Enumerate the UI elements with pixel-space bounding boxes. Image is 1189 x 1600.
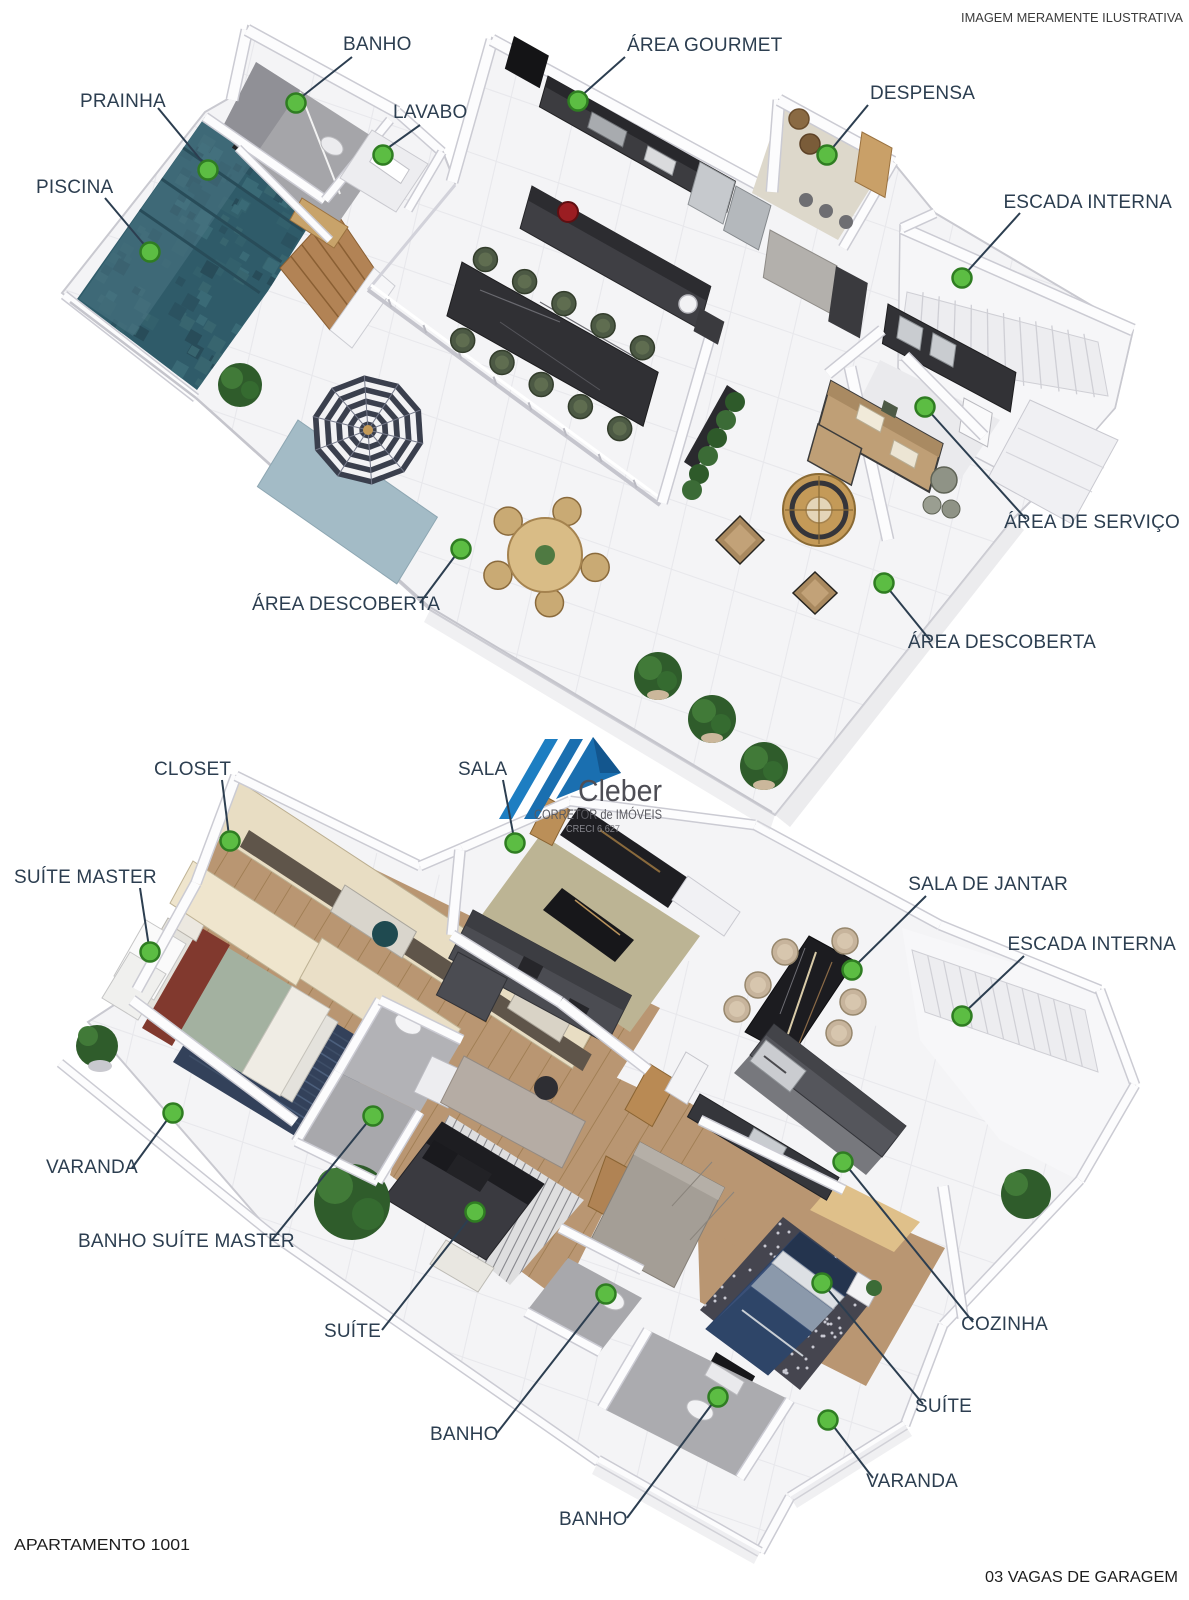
svg-text:ÁREA DESCOBERTA: ÁREA DESCOBERTA [908,632,1096,653]
svg-text:BANHO SUÍTE MASTER: BANHO SUÍTE MASTER [78,1231,295,1252]
svg-text:COZINHA: COZINHA [961,1314,1048,1335]
svg-text:BANHO: BANHO [559,1509,628,1530]
svg-text:PRAINHA: PRAINHA [80,91,166,112]
svg-text:LAVABO: LAVABO [393,102,467,123]
svg-text:SUÍTE: SUÍTE [324,1321,381,1342]
svg-text:VARANDA: VARANDA [866,1471,958,1492]
svg-text:ÁREA DE SERVIÇO: ÁREA DE SERVIÇO [1004,512,1180,533]
svg-text:ÁREA DESCOBERTA: ÁREA DESCOBERTA [252,594,440,615]
svg-text:BANHO: BANHO [430,1424,499,1445]
svg-text:SALA: SALA [458,759,508,780]
svg-text:CRECI 6.627: CRECI 6.627 [566,824,620,835]
svg-text:SUÍTE: SUÍTE [915,1396,972,1417]
svg-text:VARANDA: VARANDA [46,1157,138,1178]
svg-text:DESPENSA: DESPENSA [870,83,975,104]
svg-text:CLOSET: CLOSET [154,759,231,780]
svg-text:IMAGEM MERAMENTE ILUSTRATIVA: IMAGEM MERAMENTE ILUSTRATIVA [961,10,1183,25]
svg-text:SALA DE JANTAR: SALA DE JANTAR [908,874,1068,895]
svg-text:ÁREA GOURMET: ÁREA GOURMET [627,35,783,56]
svg-text:03 VAGAS DE GARAGEM: 03 VAGAS DE GARAGEM [985,1569,1178,1586]
svg-text:ESCADA INTERNA: ESCADA INTERNA [1003,192,1172,213]
svg-text:ESCADA INTERNA: ESCADA INTERNA [1007,934,1176,955]
svg-text:CORRETOR de IMÓVEIS: CORRETOR de IMÓVEIS [534,807,662,822]
svg-text:APARTAMENTO 1001: APARTAMENTO 1001 [14,1537,190,1554]
svg-text:BANHO: BANHO [343,34,412,55]
svg-text:Cleber: Cleber [578,773,662,808]
svg-text:PISCINA: PISCINA [36,177,114,198]
svg-text:SUÍTE MASTER: SUÍTE MASTER [14,867,157,888]
